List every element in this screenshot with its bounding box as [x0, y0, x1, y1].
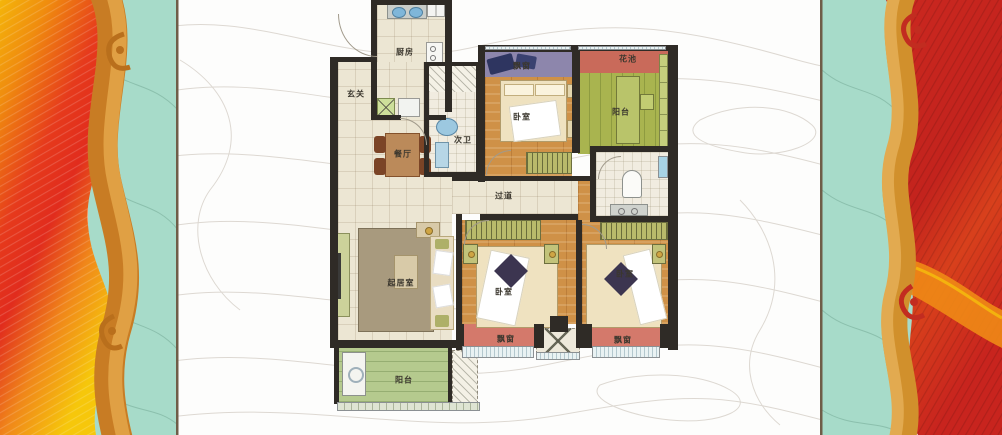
kitchen-cabinet: [398, 98, 420, 117]
wall: [480, 214, 578, 220]
room-label-balcony-bottom: 阳台: [395, 375, 413, 386]
room-label-corridor: 过道: [495, 191, 513, 202]
wall: [424, 62, 482, 66]
ac-hatch-box: [452, 350, 478, 404]
wall: [478, 45, 485, 182]
room-label-bay-mid: 飘窗: [497, 334, 515, 345]
nightstand: [463, 244, 478, 264]
floorplan: 厨房 玄关 餐厅 次卫 飘窗 卧室 花池 阳台 过道 起居室 卧室 飘窗 卧室 …: [330, 0, 678, 414]
dining-chair: [374, 136, 386, 153]
wardrobe-bedroom-right: [600, 222, 668, 240]
kitchen-appliance-grid: [427, 3, 445, 17]
nightstand: [544, 244, 559, 264]
room-label-bay-right: 飘窗: [614, 335, 632, 346]
room-label-dining: 餐厅: [394, 149, 412, 160]
wall: [590, 146, 670, 152]
wall: [452, 176, 592, 181]
bed-top: [500, 80, 567, 142]
bay-window-rail: [592, 346, 660, 358]
wall: [572, 45, 580, 153]
wall: [371, 0, 452, 5]
wall: [371, 115, 401, 120]
wall: [424, 62, 429, 177]
closet-hatch-floor: [429, 66, 476, 92]
sofa: [430, 236, 454, 330]
wall: [534, 324, 544, 348]
stove: [426, 42, 443, 64]
room-label-living: 起居室: [388, 278, 415, 289]
kitchen-sink-unit: [387, 3, 427, 19]
left-flame-border: [0, 0, 180, 435]
toilet-secondary: [436, 118, 458, 136]
bed-right: [586, 244, 662, 328]
shaft-rail: [536, 352, 580, 360]
bay-window-rail: [462, 346, 534, 358]
window: [578, 46, 666, 50]
wall: [660, 324, 678, 348]
entry-door-arc: [338, 14, 377, 57]
toilet-master: [622, 170, 642, 198]
wall: [596, 216, 670, 222]
room-label-flower-bed: 花池: [619, 54, 637, 65]
room-label-bedroom-top: 卧室: [513, 112, 531, 123]
wardrobe-bedroom-top: [526, 152, 572, 174]
room-label-bedroom-mid: 卧室: [495, 287, 513, 298]
room-label-balcony-top: 阳台: [612, 107, 630, 118]
room-label-kitchen: 厨房: [396, 47, 414, 58]
wall: [371, 62, 377, 120]
shower-secondary: [435, 142, 449, 168]
window: [485, 46, 571, 50]
corridor-floor: [452, 181, 592, 214]
room-label-bay-top: 飘窗: [513, 61, 531, 72]
bathroom-window: [658, 156, 668, 178]
wall: [330, 340, 462, 348]
balcony-rail: [337, 402, 480, 411]
planter-strip: [659, 54, 668, 148]
vanity: [610, 204, 648, 216]
balcony-stool: [640, 94, 654, 110]
wall: [668, 45, 678, 350]
wall: [334, 348, 339, 404]
wall: [330, 57, 374, 62]
wall: [550, 316, 568, 332]
poster: 厨房 玄关 餐厅 次卫 飘窗 卧室 花池 阳台 过道 起居室 卧室 飘窗 卧室 …: [0, 0, 1002, 435]
hall-right-floor: [578, 181, 590, 222]
dining-chair: [374, 158, 386, 175]
wall: [448, 348, 452, 406]
wall: [330, 57, 338, 348]
wall: [445, 0, 452, 112]
room-label-bath2: 次卫: [454, 135, 472, 146]
right-flame-border: [820, 0, 1002, 435]
washing-machine: [342, 352, 366, 396]
wall: [582, 324, 592, 348]
room-label-entry: 玄关: [347, 89, 365, 100]
room-label-bedroom-right: 卧室: [616, 269, 634, 280]
wall: [456, 324, 464, 348]
nightstand: [652, 244, 666, 264]
wall: [590, 146, 596, 222]
